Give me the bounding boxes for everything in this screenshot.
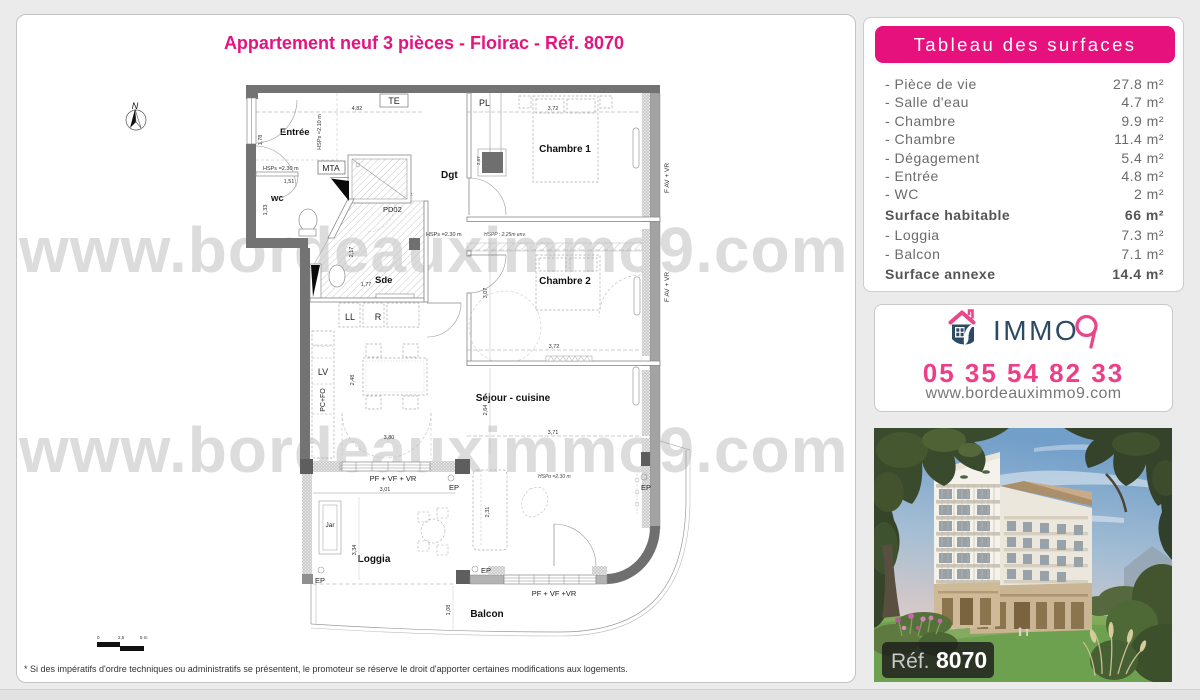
svg-text:EP: EP — [315, 576, 325, 585]
svg-text:Dgt: Dgt — [441, 170, 458, 181]
svg-text:1,08: 1,08 — [446, 605, 452, 616]
svg-text:F AV + VR: F AV + VR — [664, 163, 671, 193]
svg-text:Loggia: Loggia — [358, 554, 391, 565]
svg-text:R: R — [375, 312, 382, 322]
svg-text:PL: PL — [479, 98, 490, 108]
svg-text:2,17: 2,17 — [349, 247, 355, 258]
svg-text:Séjour - cuisine: Séjour - cuisine — [476, 393, 551, 404]
svg-text:PF + VF +VR: PF + VF +VR — [532, 589, 577, 598]
svg-text:8070: 8070 — [936, 647, 987, 673]
svg-text:3,72: 3,72 — [548, 106, 559, 112]
svg-text:LV: LV — [318, 367, 328, 377]
svg-text:PF + VF + VR: PF + VF + VR — [370, 474, 417, 483]
svg-text:2,31: 2,31 — [485, 507, 491, 518]
svg-text:3,72: 3,72 — [549, 344, 560, 350]
svg-text:EP: EP — [449, 483, 459, 492]
svg-text:wc: wc — [270, 193, 284, 204]
svg-text:0: 0 — [97, 635, 100, 640]
svg-text:Sde: Sde — [375, 275, 392, 286]
svg-text:Chambre 1: Chambre 1 — [539, 144, 591, 155]
svg-text:3,07: 3,07 — [483, 288, 489, 299]
svg-text:PD02: PD02 — [383, 205, 402, 214]
svg-text:HSPs =2.30 m: HSPs =2.30 m — [426, 232, 462, 238]
svg-text:Jar: Jar — [325, 522, 335, 529]
svg-text:5 m: 5 m — [140, 635, 148, 640]
svg-text:IMMO: IMMO — [993, 315, 1079, 346]
svg-text:Chambre 2: Chambre 2 — [539, 276, 591, 287]
svg-text:Balcon: Balcon — [470, 609, 503, 620]
svg-text:HSPP : 2.25m env.: HSPP : 2.25m env. — [484, 232, 526, 238]
svg-text:3,01: 3,01 — [380, 487, 391, 493]
svg-text:3,80: 3,80 — [384, 435, 395, 441]
svg-text:2,07: 2,07 — [476, 156, 481, 165]
svg-text:TE: TE — [388, 96, 400, 106]
svg-text:Entrée: Entrée — [280, 127, 310, 138]
svg-text:3,34: 3,34 — [352, 545, 358, 556]
svg-text:F AV + VR: F AV + VR — [664, 272, 671, 302]
svg-text:1,33: 1,33 — [263, 205, 269, 216]
svg-text:LL: LL — [345, 312, 355, 322]
svg-text:HSPo =2.30 m: HSPo =2.30 m — [538, 474, 571, 480]
svg-text:PC+FO: PC+FO — [320, 388, 327, 412]
svg-text:2,5: 2,5 — [118, 635, 125, 640]
svg-text:1,51: 1,51 — [284, 179, 295, 185]
svg-text:HSPs =2.30 m: HSPs =2.30 m — [263, 166, 299, 172]
svg-text:2,48: 2,48 — [350, 375, 356, 386]
svg-text:HSPs =2.10 m: HSPs =2.10 m — [317, 114, 323, 150]
svg-text:2,64: 2,64 — [483, 405, 489, 416]
svg-text:3,71: 3,71 — [548, 430, 559, 436]
svg-text:EP: EP — [481, 566, 491, 575]
svg-text:1,77: 1,77 — [361, 282, 372, 288]
svg-text:4,82: 4,82 — [352, 106, 363, 112]
svg-text:1,78: 1,78 — [258, 135, 264, 146]
svg-text:EP: EP — [641, 483, 651, 492]
svg-text:MTA: MTA — [322, 163, 340, 173]
svg-text:Réf.: Réf. — [891, 650, 930, 673]
svg-text:N: N — [132, 101, 139, 111]
